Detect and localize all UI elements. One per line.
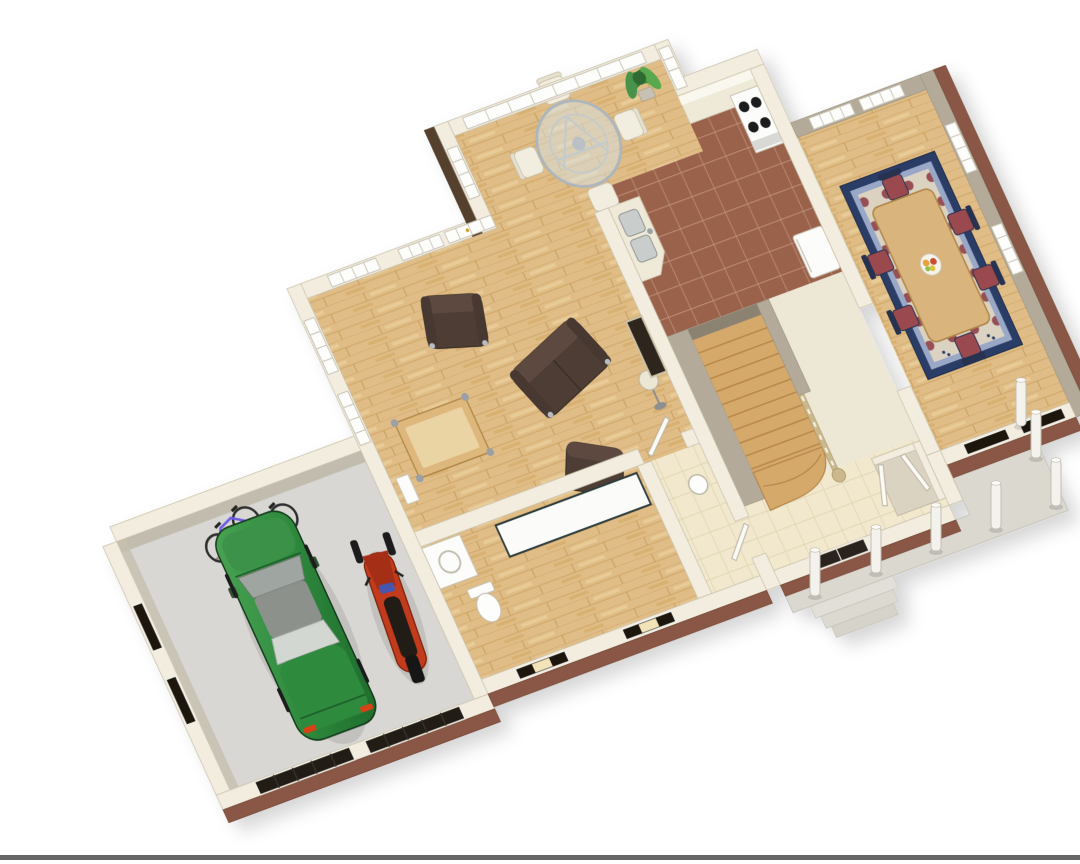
porch-column <box>929 503 943 555</box>
floor-plan-render <box>0 0 1080 864</box>
porch-column <box>1029 410 1043 462</box>
porch-column <box>808 548 822 600</box>
porch-column <box>1049 458 1063 510</box>
baseline-strip <box>0 855 1080 860</box>
floor-plan-render-page <box>0 0 1080 864</box>
porch-column <box>869 525 883 577</box>
porch-column <box>1014 378 1028 430</box>
armchair <box>420 293 489 349</box>
porch-column <box>989 481 1003 533</box>
